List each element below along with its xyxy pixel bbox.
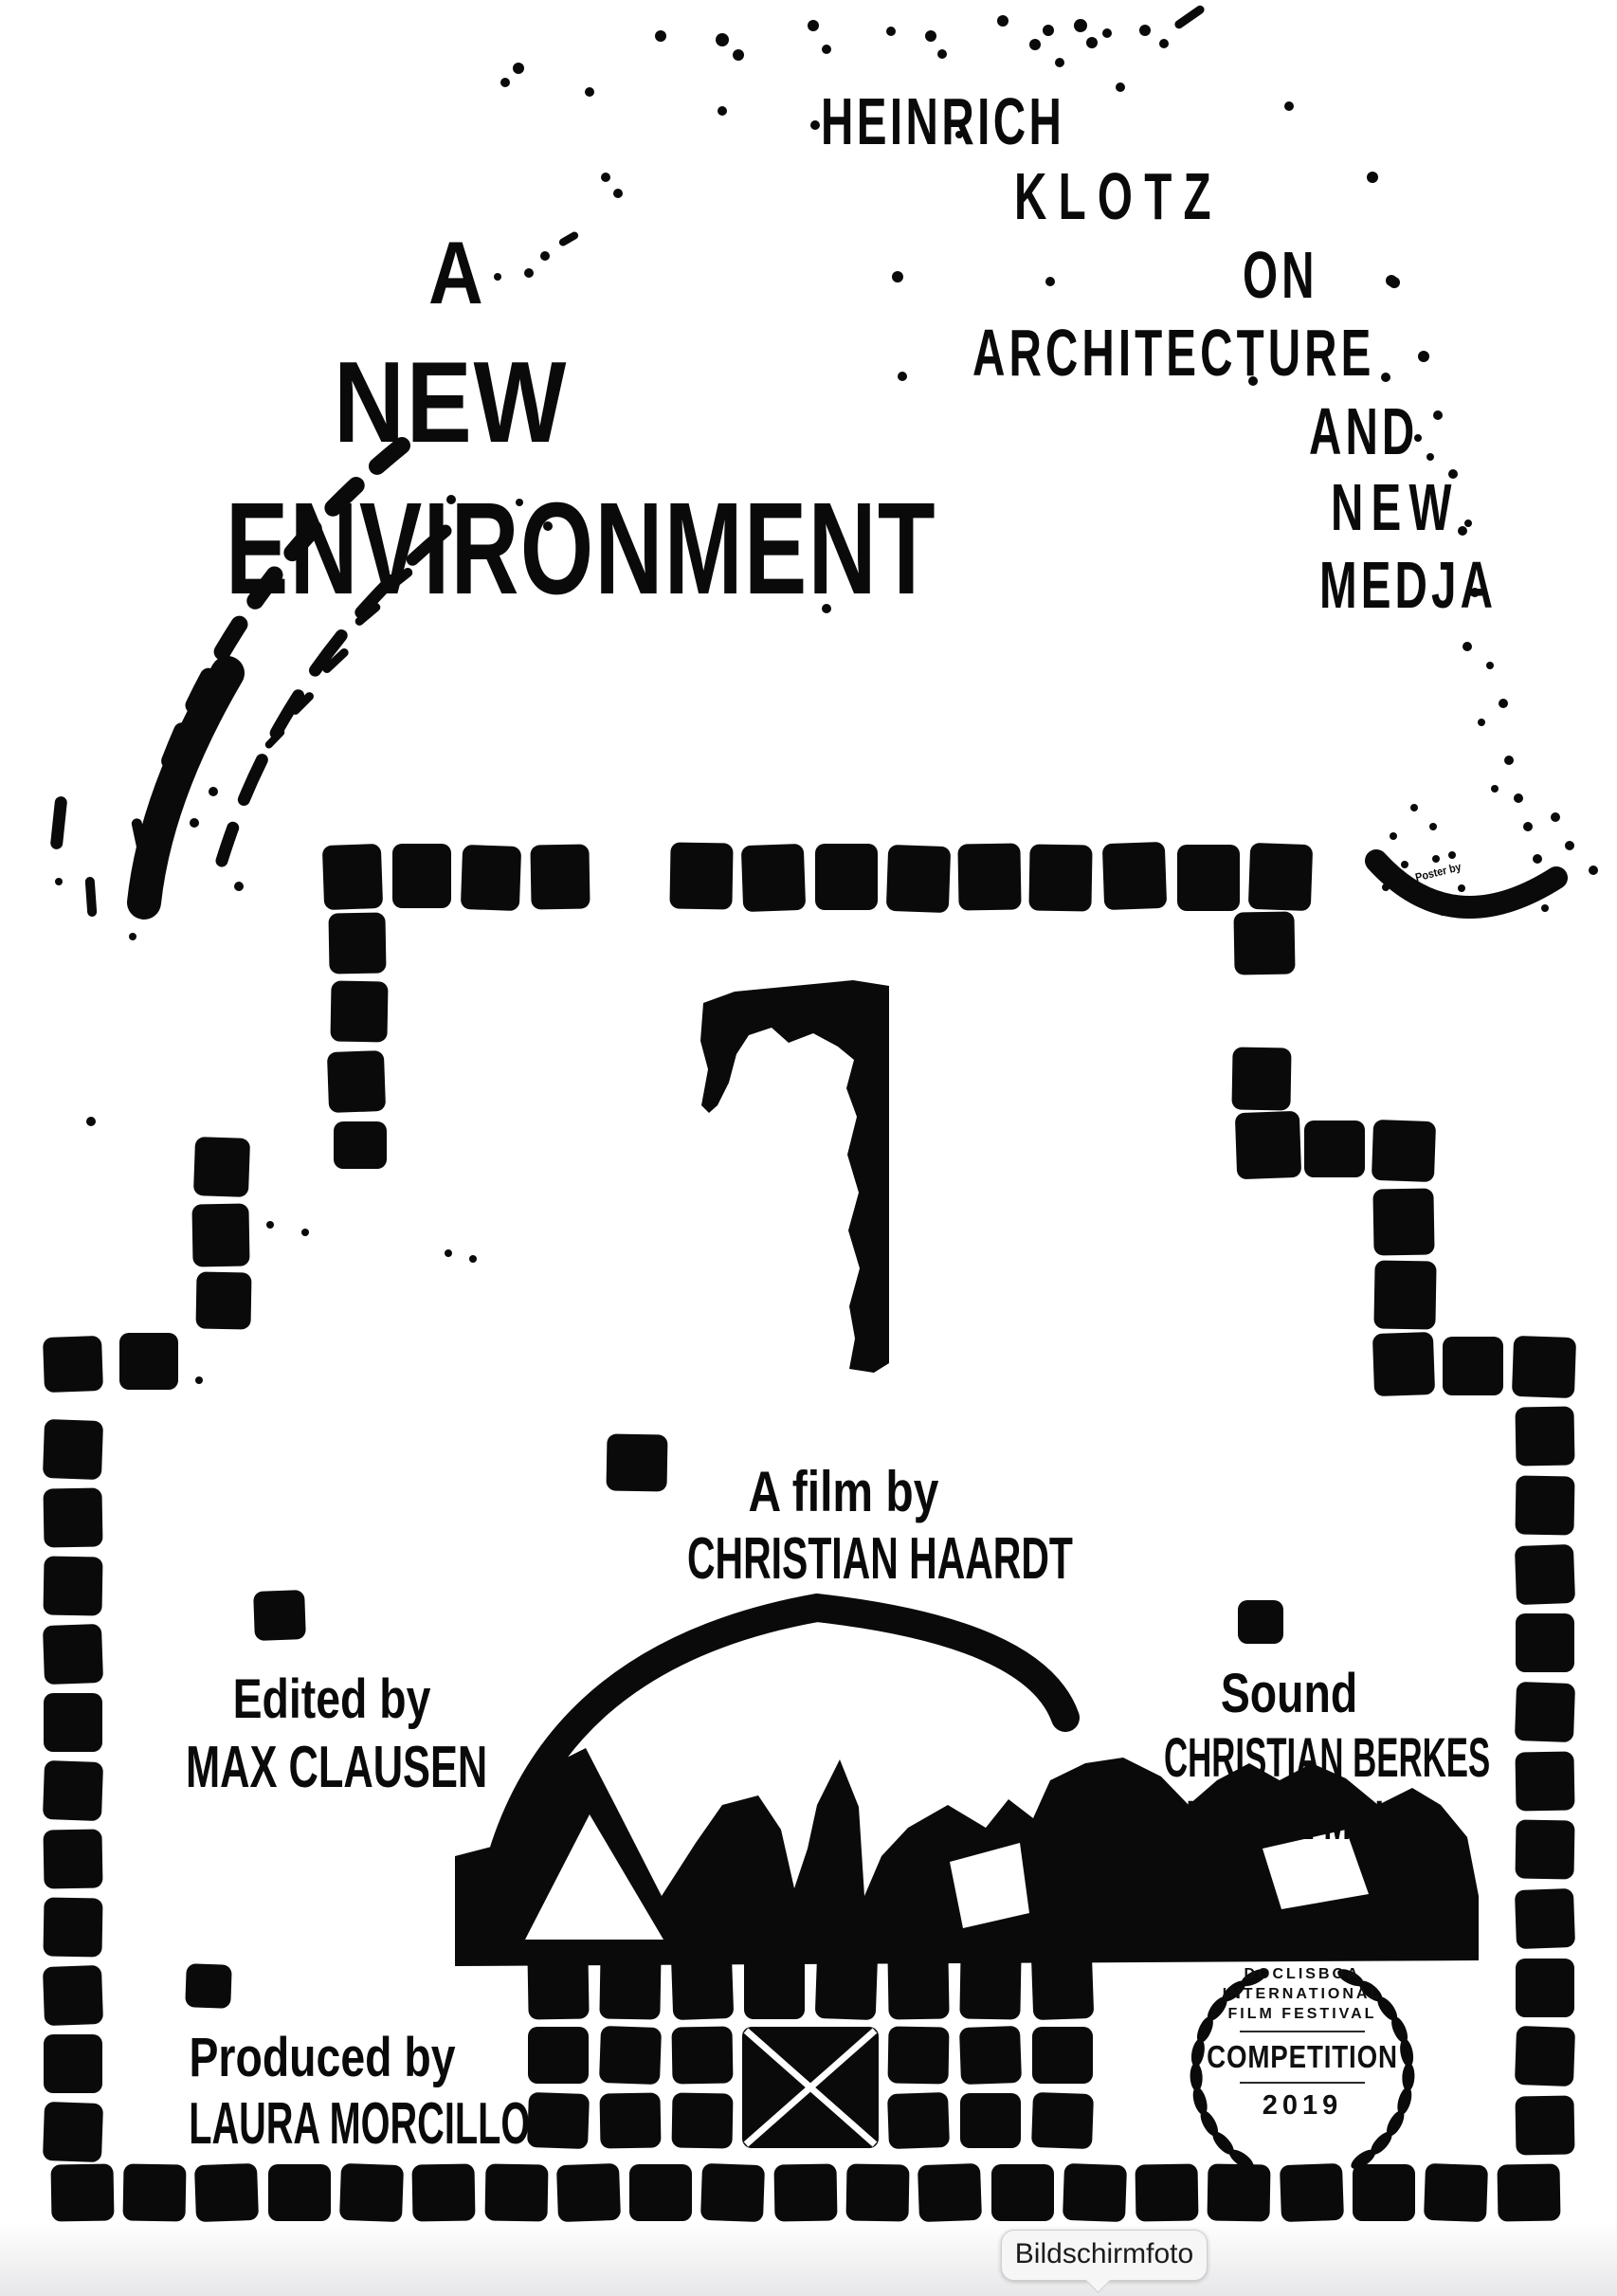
film-by-label: A film by [654, 1464, 1033, 1521]
director-name: CHRISTIAN HAARDT [687, 1530, 1000, 1589]
badge-divider-top [1240, 2031, 1365, 2032]
credit-and: AND [1309, 398, 1418, 465]
film-by-block: A film by CHRISTIAN HAARDT [607, 1464, 1081, 1589]
credit-on: ON [1243, 242, 1318, 308]
edited-by-label: Edited by [165, 1672, 499, 1727]
credit-new: NEW [1331, 474, 1460, 540]
sound-name-2: PHILIPPE MAINZ [1164, 1794, 1414, 1849]
credit-heinrich: HEINRICH [821, 88, 1064, 155]
produced-by-label: Produced by [155, 2031, 489, 2086]
window-bottom-strip [0, 2222, 1617, 2296]
edited-by-block: Edited by MAX CLAUSEN [123, 1672, 540, 1797]
sound-name-1: CHRISTIAN BERKES [1164, 1731, 1414, 1786]
title-line-a: A [428, 228, 483, 318]
badge-festival-line-2: INTERNATIONAL [1179, 1984, 1426, 2004]
screenshot-tooltip: Bildschirmfoto [1001, 2230, 1208, 2281]
credit-architecture: ARCHITECTURE [972, 319, 1374, 386]
badge-divider-bottom [1240, 2082, 1365, 2084]
badge-award: COMPETITION [1199, 2039, 1406, 2075]
badge-festival-line-3: FILM FESTIVAL [1179, 2004, 1426, 2024]
festival-badge: DOCLISBOA INTERNATIONAL FILM FESTIVAL CO… [1179, 1964, 1426, 2122]
badge-year: 2019 [1179, 2090, 1426, 2122]
title-line-new: NEW [334, 344, 568, 460]
producer-name: LAURA MORCILLO [189, 2095, 456, 2154]
title-line-environment: ENVIRONMENT [226, 483, 936, 614]
tooltip-label: Bildschirmfoto [1015, 2238, 1193, 2270]
badge-festival-line-1: DOCLISBOA [1179, 1964, 1426, 1984]
credit-media: MEDJA [1319, 552, 1497, 618]
poster-screenshot: HEINRICH KLOTZ ON ARCHITECTURE AND NEW M… [0, 0, 1617, 2296]
sound-label: Sound [1122, 1667, 1456, 1722]
stair-symbol-layer [742, 2027, 879, 2148]
credit-klotz: KLOTZ [1014, 163, 1223, 229]
sound-block: Sound CHRISTIAN BERKES PHILIPPE MAINZ [1081, 1667, 1498, 1856]
produced-by-block: Produced by LAURA MORCILLO [114, 2031, 531, 2154]
editor-name: MAX CLAUSEN [186, 1739, 478, 1797]
